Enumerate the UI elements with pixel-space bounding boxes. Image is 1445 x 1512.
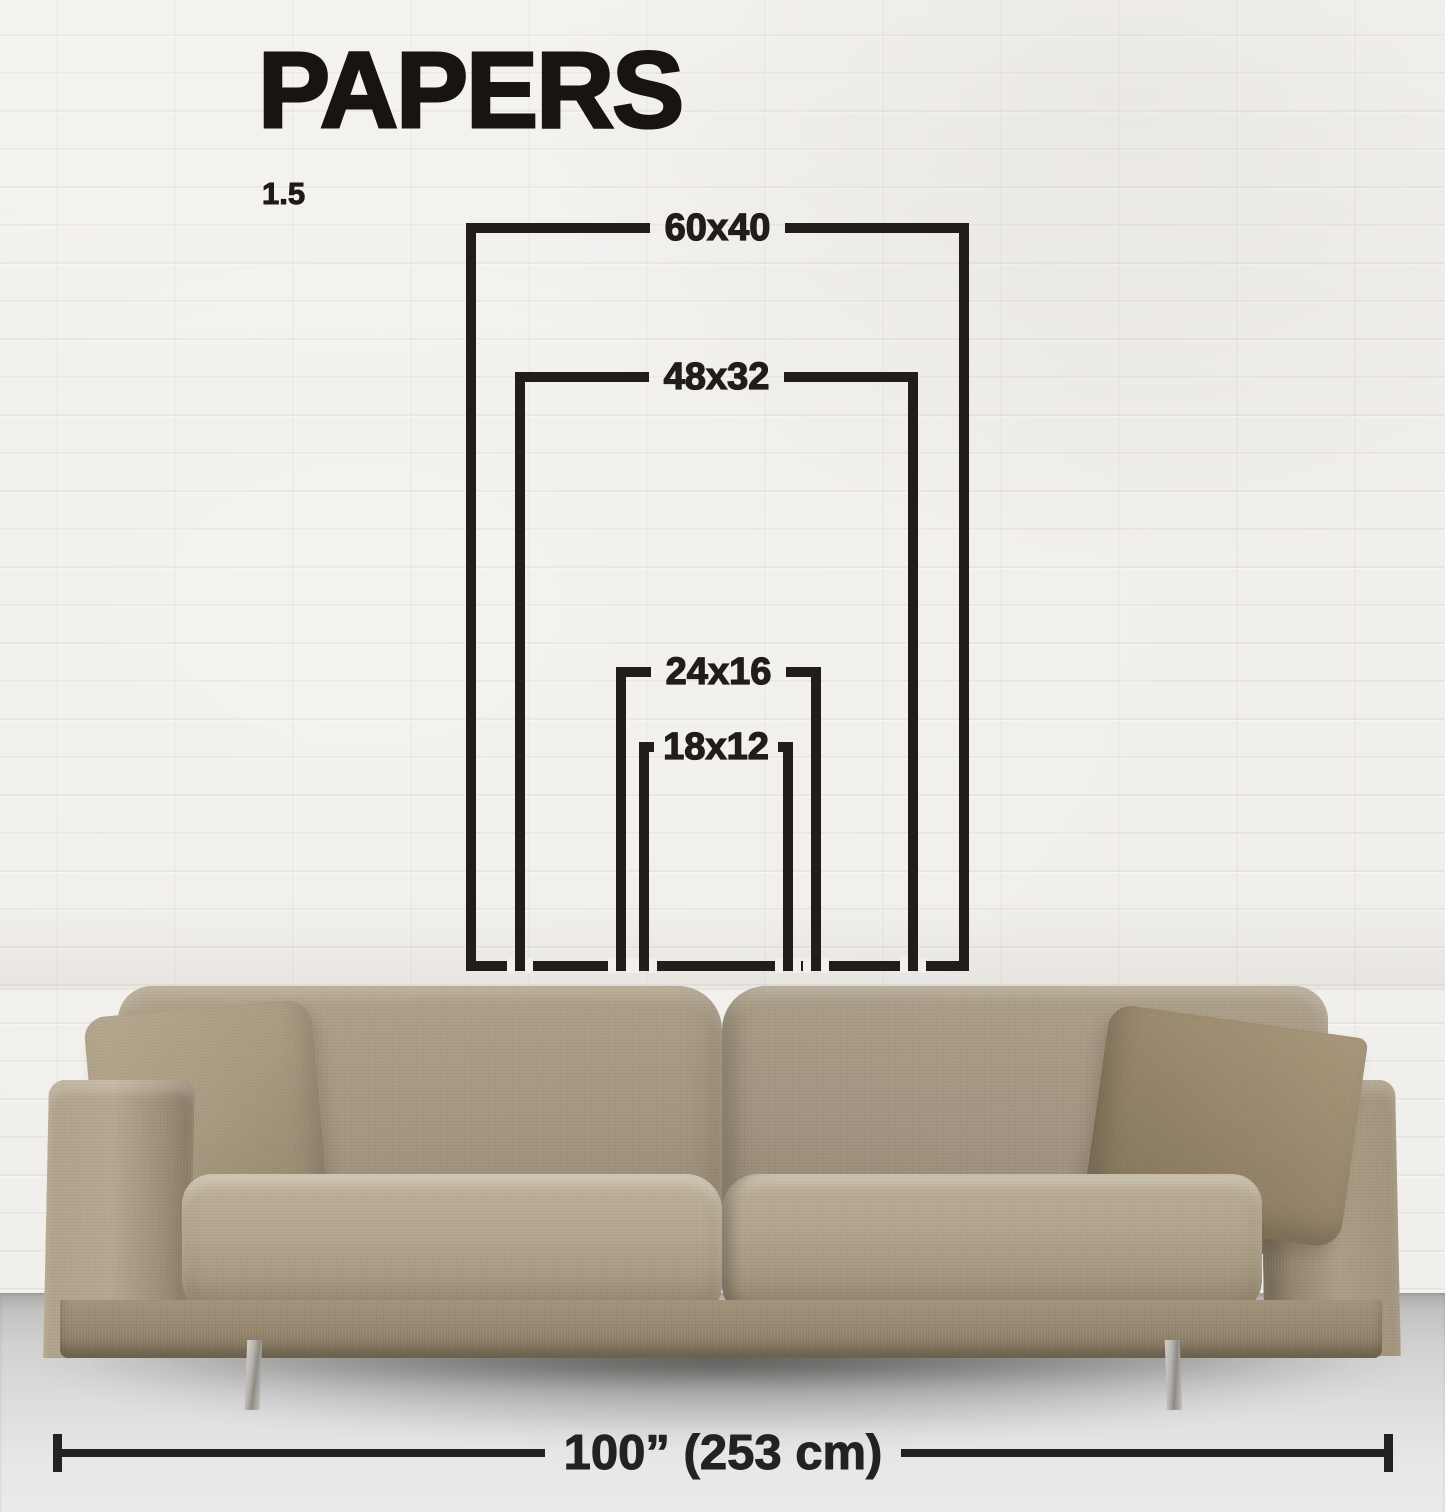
sofa-leg-right [1165,1340,1182,1410]
measure-line-right [901,1449,1384,1457]
sofa-leg-left [245,1340,262,1410]
measure-tick-right [1384,1434,1393,1472]
seat-cushion-left [182,1174,722,1314]
width-measure: 100” (253 cm) [53,1434,1393,1472]
sofa [0,0,1445,1512]
seat-cushion-right [722,1174,1262,1314]
measure-line-left [62,1449,545,1457]
measure-label: 100” (253 cm) [545,1429,902,1478]
measure-tick-left [53,1434,62,1472]
scene: PAPERS 1.5 60x40 48x32 24x16 18x12 100” … [0,0,1445,1512]
